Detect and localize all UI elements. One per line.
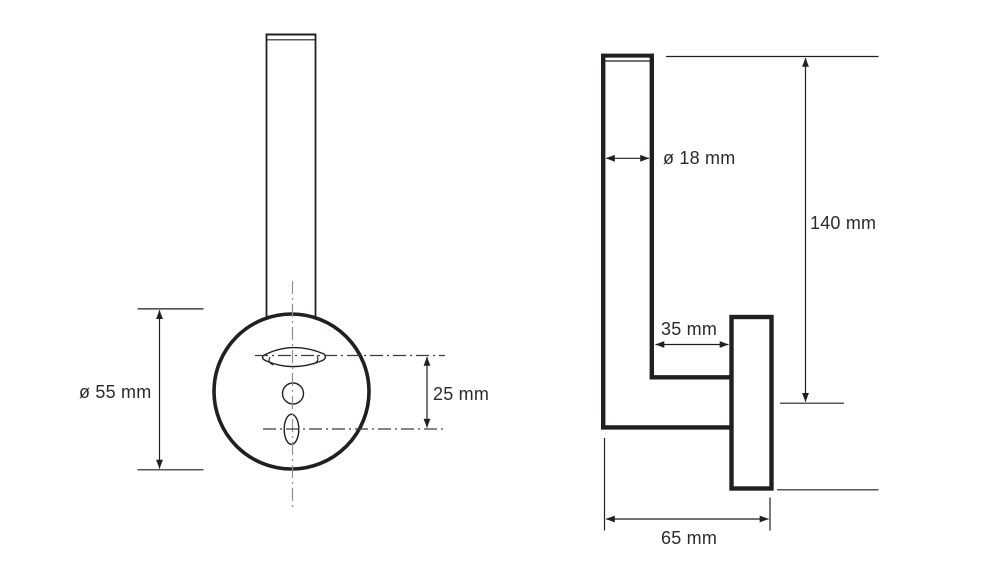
wall-plate — [732, 317, 772, 489]
tube-left-wall-and-arm-bottom — [603, 54, 733, 428]
label-plate-diameter: ø 55 mm — [79, 382, 151, 403]
label-tube-diameter: ø 18 mm — [663, 148, 735, 169]
front-view — [138, 35, 446, 511]
tube-and-arm — [601, 54, 733, 428]
rod — [266, 35, 317, 325]
label-height: 140 mm — [810, 213, 876, 234]
label-total-depth: 65 mm — [661, 528, 717, 549]
drawing-linework — [0, 0, 1008, 572]
technical-drawing-canvas: ø 55 mm 25 mm ø 18 mm 140 mm 35 mm 65 mm — [0, 0, 1008, 572]
label-hole-spacing: 25 mm — [433, 384, 489, 405]
side-view — [601, 54, 879, 531]
mounting-plate-circle — [214, 314, 369, 469]
label-arm-depth: 35 mm — [661, 319, 717, 340]
